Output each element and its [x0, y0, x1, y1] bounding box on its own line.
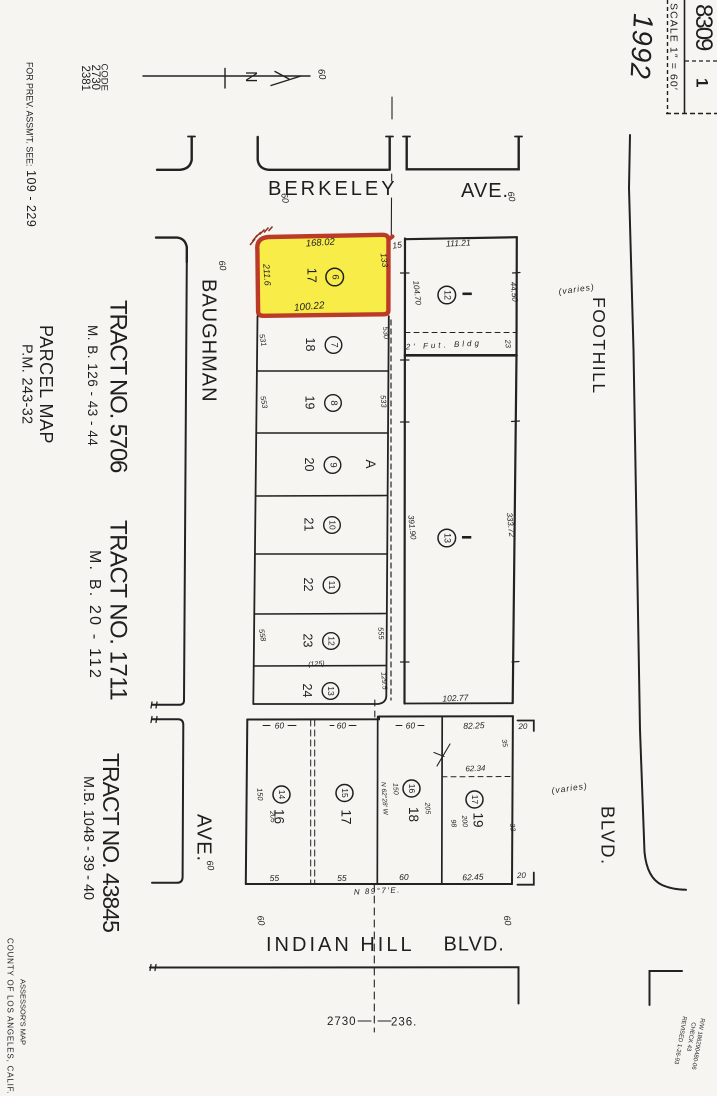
svg-text:2381: 2381	[79, 66, 91, 92]
svg-text:60: 60	[399, 872, 409, 882]
svg-text:P.M. 243-32: P.M. 243-32	[19, 344, 35, 424]
svg-text:200: 200	[460, 814, 468, 827]
svg-text:COUNTY OF LOS ANGELES, CALIF.: COUNTY OF LOS ANGELES, CALIF.	[6, 938, 15, 1094]
svg-text:N: N	[242, 71, 259, 83]
svg-text:INDIAN HILL: INDIAN HILL	[266, 934, 415, 956]
svg-text:SCALE 1″ = 60′: SCALE 1″ = 60′	[668, 3, 680, 91]
svg-text:19: 19	[471, 812, 486, 827]
svg-text:6: 6	[330, 274, 341, 279]
svg-text:55: 55	[337, 873, 347, 883]
svg-text:M. B. 126 - 43 - 44: M. B. 126 - 43 - 44	[85, 325, 100, 446]
svg-text:M. B. 20 - 112: M. B. 20 - 112	[86, 550, 103, 680]
svg-text:60: 60	[405, 720, 415, 730]
svg-text:20: 20	[517, 722, 528, 731]
svg-text:168.02: 168.02	[305, 236, 335, 249]
svg-text:35: 35	[500, 739, 508, 748]
svg-text:19: 19	[303, 396, 317, 410]
svg-text:13: 13	[326, 686, 336, 696]
svg-text:150: 150	[255, 788, 265, 802]
svg-text:20: 20	[516, 871, 527, 880]
svg-text:16: 16	[407, 784, 417, 794]
svg-text:60: 60	[336, 720, 346, 730]
svg-text:21: 21	[302, 518, 316, 532]
svg-text:TRACT NO. 43845: TRACT NO. 43845	[98, 753, 124, 932]
svg-text:FOR PREV. ASSM′T. SEE:: FOR PREV. ASSM′T. SEE:	[25, 62, 35, 166]
svg-text:60: 60	[279, 192, 291, 204]
svg-text:17: 17	[305, 268, 320, 283]
svg-text:205: 205	[268, 810, 276, 823]
svg-text:ASSESSOR′S MAP: ASSESSOR′S MAP	[19, 979, 28, 1045]
svg-text:12: 12	[327, 636, 337, 646]
svg-text:236.: 236.	[391, 1017, 417, 1029]
svg-text:533: 533	[378, 395, 388, 409]
svg-text:82.25: 82.25	[463, 720, 485, 731]
svg-text:22: 22	[301, 578, 315, 592]
svg-text:530: 530	[381, 326, 391, 340]
svg-text:8309: 8309	[690, 4, 717, 51]
svg-text:AVE.: AVE.	[193, 814, 215, 862]
svg-text:102.77: 102.77	[442, 692, 469, 703]
svg-text:60: 60	[506, 191, 518, 203]
svg-text:PARCEL MAP: PARCEL MAP	[36, 325, 56, 444]
svg-text:7: 7	[329, 342, 340, 347]
svg-text:98: 98	[449, 819, 457, 827]
svg-text:24: 24	[300, 684, 314, 698]
svg-text:20: 20	[302, 458, 316, 472]
svg-text:62.34: 62.34	[465, 764, 486, 774]
svg-text:FOOTHILL: FOOTHILL	[589, 297, 609, 395]
svg-text:M.B. 1048 - 39 - 40: M.B. 1048 - 39 - 40	[80, 776, 96, 900]
svg-text:AVE.: AVE.	[461, 180, 509, 202]
svg-text:TRACT NO. 5706: TRACT NO. 5706	[105, 300, 132, 473]
svg-text:60: 60	[205, 860, 217, 872]
svg-text:2730: 2730	[327, 1016, 357, 1028]
svg-text:15: 15	[392, 239, 403, 250]
svg-text:17: 17	[470, 795, 480, 805]
svg-text:60: 60	[274, 720, 284, 730]
svg-text:23: 23	[503, 338, 513, 349]
svg-text:17: 17	[339, 809, 354, 824]
svg-text:205: 205	[423, 801, 431, 814]
svg-text:BLVD.: BLVD.	[598, 806, 619, 866]
svg-text:14: 14	[277, 790, 287, 800]
svg-text:1: 1	[693, 78, 712, 87]
svg-text:15: 15	[340, 788, 350, 798]
svg-text:133: 133	[379, 252, 391, 268]
svg-text:555: 555	[376, 627, 386, 641]
svg-text:111.21: 111.21	[446, 237, 471, 248]
svg-text:12: 12	[442, 290, 452, 300]
svg-text:1992: 1992	[625, 13, 659, 81]
svg-text:33: 33	[508, 823, 516, 831]
svg-text:9: 9	[328, 462, 339, 467]
svg-text:150: 150	[391, 783, 399, 795]
svg-text:60: 60	[502, 915, 514, 927]
svg-text:BLVD.: BLVD.	[444, 934, 505, 956]
svg-text:109 - 229: 109 - 229	[24, 170, 38, 227]
svg-text:62.45: 62.45	[462, 872, 484, 883]
svg-text:13: 13	[442, 533, 452, 543]
svg-text:23: 23	[301, 634, 315, 648]
svg-text:60: 60	[255, 915, 267, 927]
svg-text:60: 60	[217, 260, 229, 272]
svg-text:A: A	[363, 459, 378, 468]
svg-text:(125): (125)	[308, 660, 325, 668]
svg-text:55: 55	[269, 873, 279, 883]
svg-text:BAUGHMAN: BAUGHMAN	[198, 279, 220, 403]
svg-text:8: 8	[328, 400, 339, 405]
svg-text:18: 18	[406, 807, 421, 822]
svg-text:10: 10	[328, 520, 338, 530]
svg-text:11: 11	[327, 581, 337, 590]
svg-text:211.6: 211.6	[261, 263, 273, 287]
svg-text:18: 18	[303, 338, 317, 352]
svg-text:TRACT NO. 1711: TRACT NO. 1711	[105, 520, 132, 700]
